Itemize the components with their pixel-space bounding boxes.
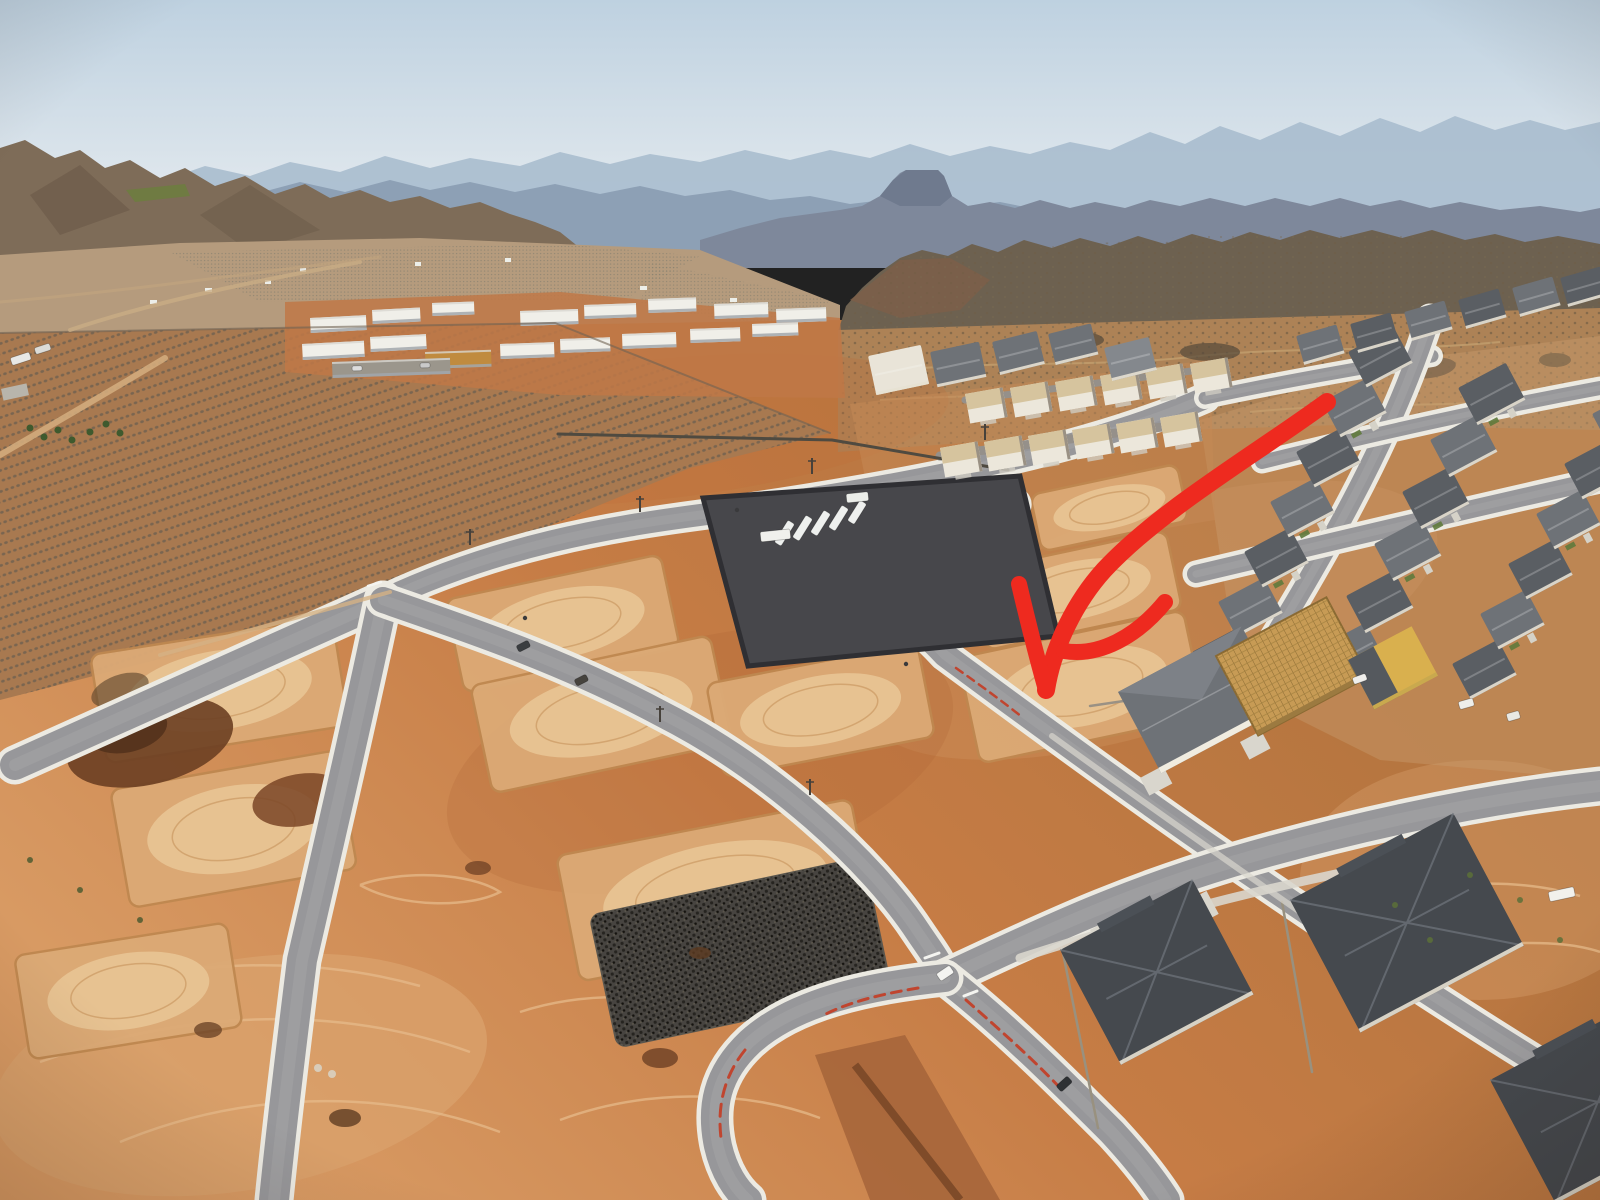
vignette bbox=[0, 0, 1600, 1200]
aerial-photo-canvas bbox=[0, 0, 1600, 1200]
aerial-photo bbox=[0, 0, 1600, 1200]
